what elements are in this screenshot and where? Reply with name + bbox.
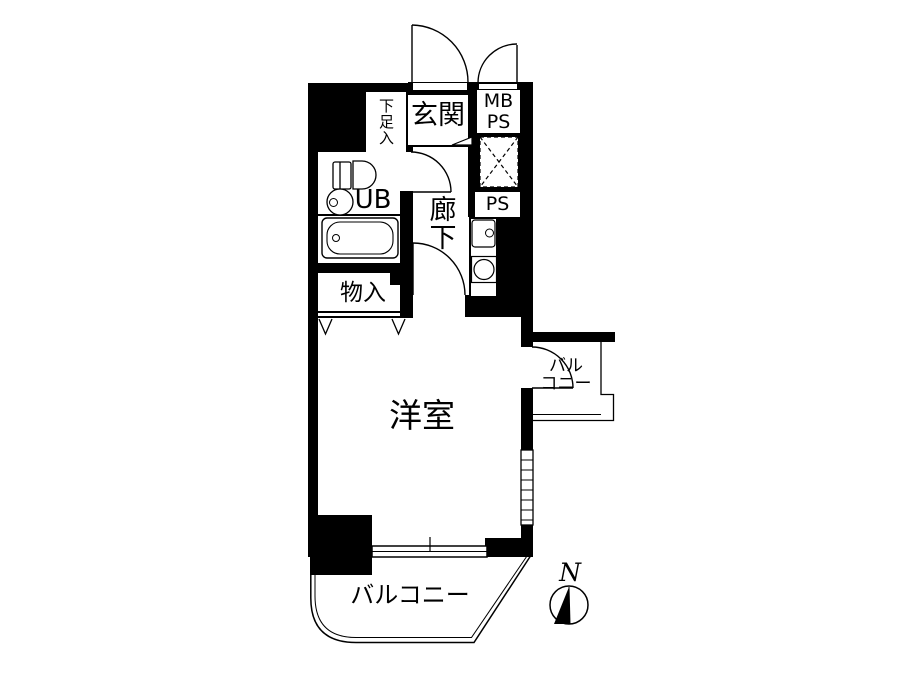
room-label-side-balcony: バル コニー — [533, 350, 599, 400]
shaft-cross-icon — [480, 137, 518, 187]
compass-north-text: N — [559, 560, 581, 587]
side-balcony-text-2: コニー — [541, 375, 592, 393]
meter-box-text-1: MB — [484, 91, 513, 111]
room-label-shoe-closet: 下足入 — [365, 93, 407, 151]
room-label-unit-bath: UB — [350, 187, 396, 214]
genkan-text: 玄関 — [411, 102, 465, 131]
pipe-space-text: PS — [486, 194, 510, 214]
sliding-window-icon — [372, 537, 487, 557]
entrance-step-icon — [452, 137, 472, 145]
entrance-door-swing-icon — [412, 25, 468, 82]
balcony-text: バルコニー — [350, 583, 470, 609]
room-label-western-room: 洋室 — [382, 394, 462, 438]
room-label-storage: 物入 — [326, 277, 400, 309]
shoe-closet-text: 下足入 — [378, 98, 394, 146]
kitchen-sink-icon — [472, 220, 495, 247]
room-label-balcony: バルコニー — [348, 579, 472, 613]
compass-north-label: N — [554, 559, 586, 587]
closet-chevron-icon — [319, 319, 405, 334]
corridor-text: 廊下 — [425, 195, 454, 251]
western-room-text: 洋室 — [389, 398, 455, 433]
storage-text: 物入 — [340, 281, 386, 306]
stove-burner-icon — [472, 257, 497, 283]
meter-box-text-2: PS — [487, 112, 511, 132]
unit-bath-text: UB — [355, 187, 392, 215]
room-label-corridor: 廊下 — [421, 185, 457, 261]
meterbox-door-swing-icon — [478, 44, 517, 83]
side-balcony-text-1: バル — [549, 357, 583, 375]
room-label-meter-box: MB PS — [477, 90, 520, 133]
compass-icon — [550, 586, 588, 624]
room-label-genkan: 玄関 — [406, 98, 470, 134]
floorplan: 玄関 下足入 MB PS UB 廊下 PS 物入 洋室 バル コニー バルコニー… — [0, 0, 900, 675]
room-label-pipe-space: PS — [475, 192, 520, 217]
louver-window-icon — [521, 450, 533, 525]
bathtub-icon — [322, 218, 398, 258]
